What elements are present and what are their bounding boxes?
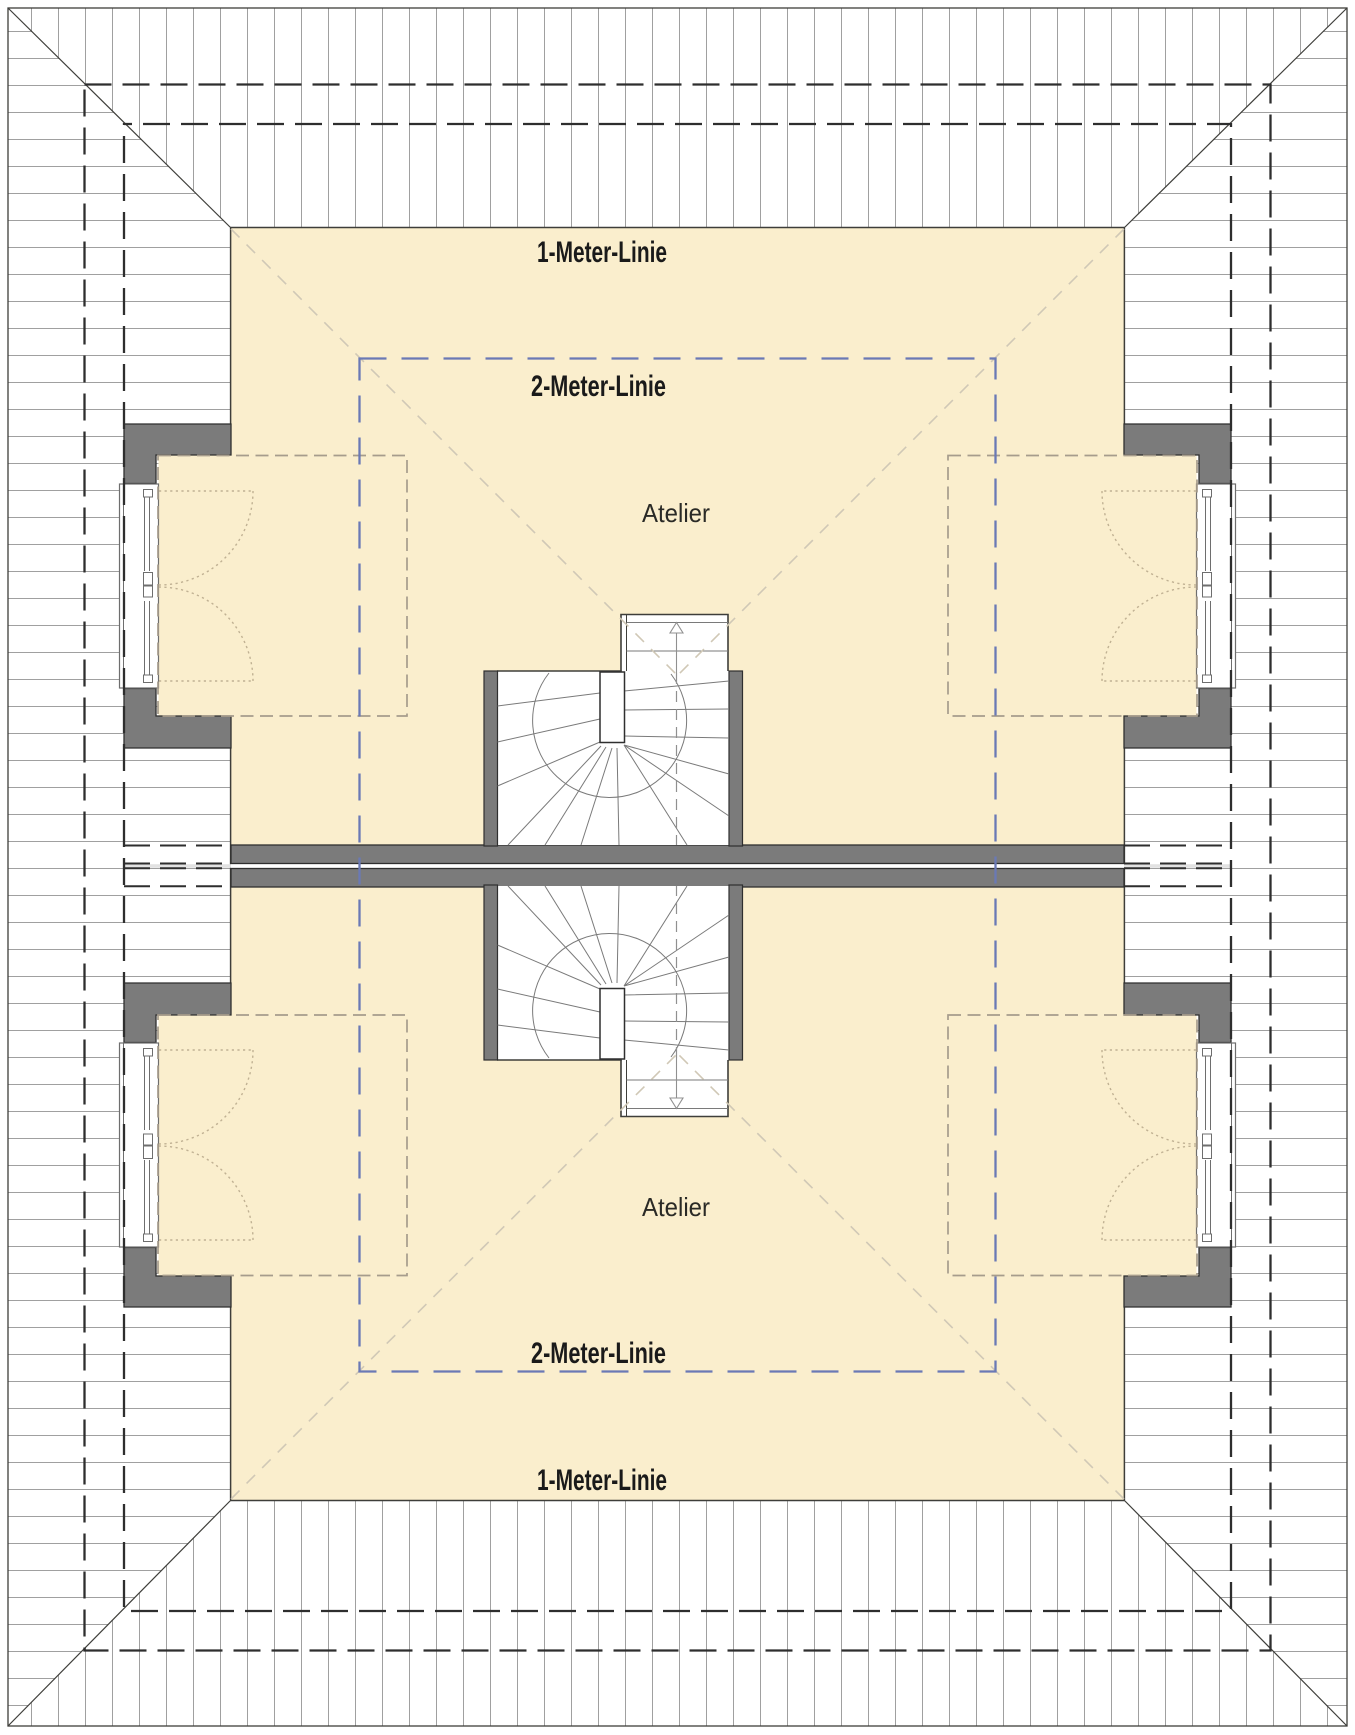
svg-text:2-Meter-Linie: 2-Meter-Linie — [531, 1337, 666, 1370]
svg-text:1-Meter-Linie: 1-Meter-Linie — [537, 1464, 667, 1497]
svg-text:Atelier: Atelier — [642, 498, 710, 528]
svg-text:2-Meter-Linie: 2-Meter-Linie — [531, 370, 666, 403]
svg-text:Atelier: Atelier — [642, 1192, 710, 1222]
svg-text:1-Meter-Linie: 1-Meter-Linie — [537, 236, 667, 269]
